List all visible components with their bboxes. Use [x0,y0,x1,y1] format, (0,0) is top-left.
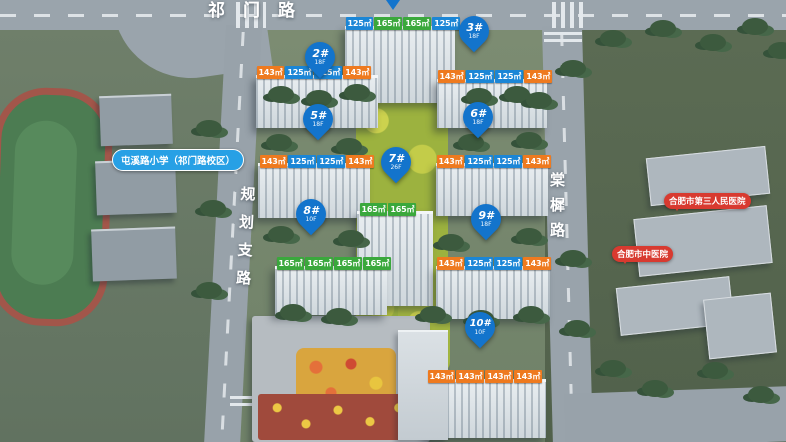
pin-floors: 18F [472,119,483,126]
unit-area-chip: 165㎡ [305,257,333,270]
pin-floors: 18F [314,59,325,66]
unit-area-chip: 143㎡ [523,155,551,168]
pin-floors: 18F [468,33,479,40]
tree-cluster [338,230,364,247]
building-pin-6[interactable]: 6#18F [461,102,495,148]
tree-cluster [564,320,590,337]
unit-area-chip: 125㎡ [466,70,494,83]
unit-area-chip: 125㎡ [317,155,345,168]
tree-cluster [196,120,222,137]
tree-cluster [196,282,222,299]
unit-area-chip: 165㎡ [360,203,388,216]
tree-cluster [600,360,626,377]
tree-cluster [518,306,544,323]
pin-number: 5# [310,110,325,121]
building-pin-1-partial[interactable] [386,0,400,17]
pin-number: 7# [388,153,403,164]
hospital-building [703,293,777,360]
unit-area-chip: 165㎡ [374,17,402,30]
tree-cluster [526,92,552,109]
unit-area-chip: 143㎡ [428,370,456,383]
unit-area-chip: 165㎡ [334,257,362,270]
unit-area-chip: 125㎡ [288,155,316,168]
unit-area-chip: 165㎡ [277,257,305,270]
tree-cluster [438,234,464,251]
tree-cluster [268,226,294,243]
unit-area-chip: 125㎡ [465,155,493,168]
unit-chip-row-3: 143㎡125㎡125㎡143㎡ [437,64,553,83]
unit-area-chip: 143㎡ [260,155,288,168]
building-pin-3[interactable]: 3#18F [457,16,491,62]
pin-number: 9# [478,210,493,221]
unit-chip-row-1: 125㎡165㎡165㎡125㎡ [345,11,461,30]
unit-area-chip: 125㎡ [346,17,374,30]
tree-cluster [420,306,446,323]
tree-cluster [600,30,626,47]
tree-cluster [268,86,294,103]
unit-area-chip: 143㎡ [523,257,551,270]
unit-area-chip: 143㎡ [437,257,465,270]
tree-cluster [280,304,306,321]
pin-number: 2# [312,48,327,59]
road-label-qimen: 祁门路 [208,0,313,21]
kindergarten-building [398,330,448,440]
unit-area-chip: 143㎡ [438,70,466,83]
unit-area-chip: 143㎡ [456,370,484,383]
tree-cluster [560,250,586,267]
crosswalk [552,2,586,28]
pin-floors: 26F [390,164,401,171]
crosswalk [544,32,582,46]
unit-area-chip: 125㎡ [432,17,460,30]
tree-cluster [200,200,226,217]
unit-area-chip: 125㎡ [494,155,522,168]
tree-cluster [700,34,726,51]
unit-area-chip: 143㎡ [524,70,552,83]
building-pin-5[interactable]: 5#18F [301,104,335,150]
aerial-masterplan-map: 125㎡165㎡165㎡125㎡ 143㎡125㎡125㎡143㎡ 143㎡12… [0,0,786,442]
unit-chip-row-10: 143㎡143㎡143㎡143㎡ [427,364,543,383]
hospital-label-bottom[interactable]: 合肥市中医院 [612,246,673,262]
unit-area-chip: 143㎡ [346,155,374,168]
tree-cluster [702,362,728,379]
tree-cluster [650,20,676,37]
unit-area-chip: 143㎡ [257,66,285,79]
tree-cluster [326,308,352,325]
tree-cluster [516,132,542,149]
pin-number: 6# [470,108,485,119]
unit-area-chip: 143㎡ [343,66,371,79]
unit-area-chip: 165㎡ [363,257,391,270]
unit-area-chip: 143㎡ [437,155,465,168]
pin-floors: 18F [312,121,323,128]
unit-chip-row-5: 143㎡125㎡125㎡143㎡ [259,149,375,168]
pin-number: 8# [303,205,318,216]
pin-number: 10# [470,318,491,329]
tree-cluster [344,84,370,101]
pin-floors: 10F [474,329,485,336]
school-building [91,227,177,282]
unit-chip-row-7: 165㎡165㎡ [359,197,417,216]
tree-cluster [560,60,586,77]
road-label-tangxi: 棠樨路 [547,172,568,247]
tree-cluster [748,386,774,403]
sports-field [10,120,78,286]
unit-chip-row-8: 165㎡165㎡165㎡165㎡ [276,251,392,270]
hospital-label-top[interactable]: 合肥市第三人民医院 [664,193,751,209]
pin-floors: 10F [305,216,316,223]
unit-area-chip: 125㎡ [494,257,522,270]
unit-area-chip: 165㎡ [388,203,416,216]
tree-cluster [516,228,542,245]
building-pin-9[interactable]: 9#18F [469,204,503,250]
tree-cluster [742,18,768,35]
school-building [99,94,173,146]
tree-cluster [642,380,668,397]
unit-chip-row-6: 143㎡125㎡125㎡143㎡ [436,149,552,168]
unit-area-chip: 125㎡ [495,70,523,83]
unit-area-chip: 165㎡ [403,17,431,30]
pin-number: 3# [466,22,481,33]
building-pin-2[interactable]: 2#18F [303,42,337,88]
pin-floors: 18F [480,221,491,228]
building-pin-10[interactable]: 10#10F [463,312,497,358]
unit-area-chip: 143㎡ [485,370,513,383]
unit-area-chip: 143㎡ [514,370,542,383]
unit-chip-row-9: 143㎡125㎡125㎡143㎡ [436,251,552,270]
building-pin-7[interactable]: 7#26F [379,147,413,193]
building-pin-8[interactable]: 8#10F [294,199,328,245]
unit-area-chip: 125㎡ [465,257,493,270]
school-label[interactable]: 屯溪路小学（祁门路校区） [112,149,244,171]
kindergarten-playground [258,394,418,440]
